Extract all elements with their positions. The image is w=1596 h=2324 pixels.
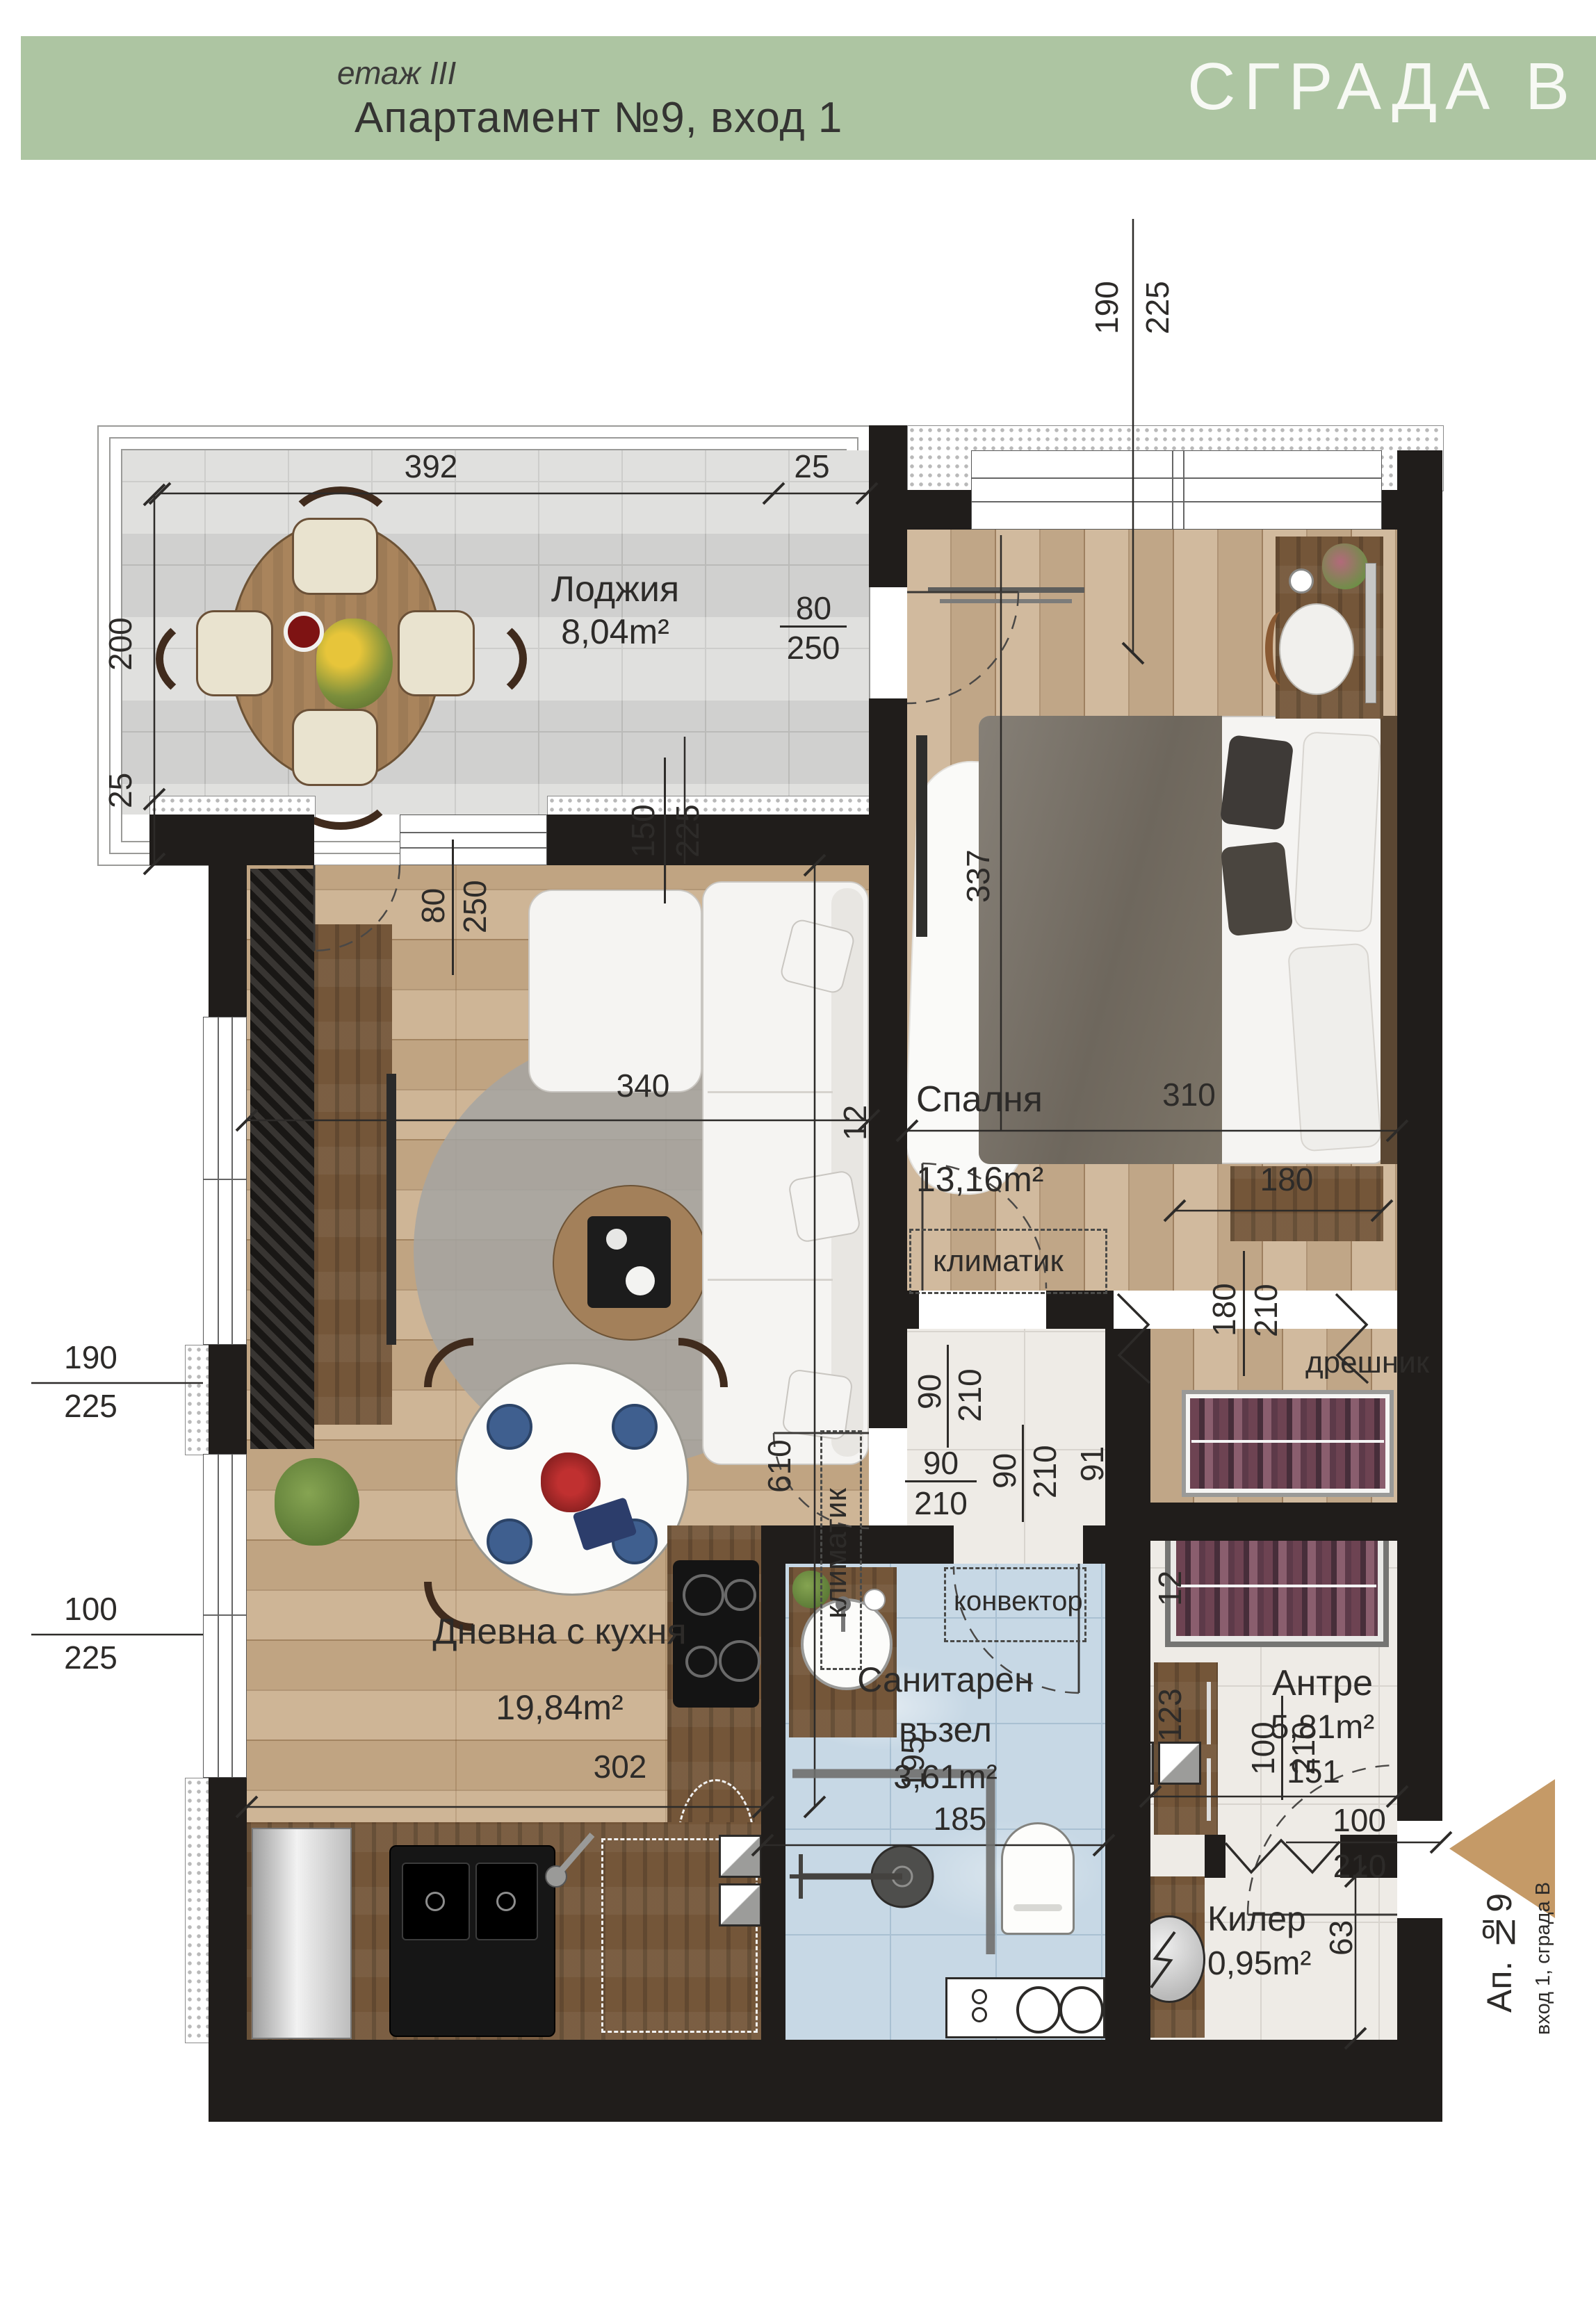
dim-door-entry-b: 210 <box>1318 1847 1401 1885</box>
bathroom-name-1: Санитарен <box>827 1660 1064 1700</box>
dim-living-width: 340 <box>601 1067 685 1104</box>
dim-door-lb-bar <box>780 625 847 628</box>
dim-wardrobe-door-bar <box>1243 1251 1245 1376</box>
dim-win-lo-b: 225 <box>40 1639 141 1676</box>
dim-closet-depth: 63 <box>1322 1903 1360 1972</box>
convector-label: конвектор <box>954 1586 1083 1617</box>
living-area: 19,84m² <box>396 1687 723 1728</box>
dim-wardrobe-width: 180 <box>1248 1161 1325 1198</box>
dim-loggia-depth-ext: 25 <box>101 758 139 824</box>
dim-loggia-width-ext: 25 <box>784 448 840 485</box>
entrance-apartment-label: Ап. №9 <box>1479 1835 1520 2071</box>
dim-door-ll-b: 250 <box>456 837 494 976</box>
dim-door-living-a: 90 <box>901 1444 981 1482</box>
entry-hall-name: Антре <box>1248 1662 1397 1704</box>
dim-win-bed-a: 190 <box>1088 229 1125 386</box>
bedroom-name: Спалня <box>916 1079 1043 1120</box>
dim-living-length: 610 <box>760 1400 798 1532</box>
dim-door-bath-bar <box>1022 1425 1024 1522</box>
dim-door-lb-bottom: 250 <box>772 629 855 666</box>
ac-bedroom-label: климатик <box>933 1244 1064 1279</box>
dim-win-ll-b: 225 <box>669 756 706 906</box>
dim-door-bath-b: 210 <box>1026 1422 1064 1522</box>
dim-loggia-depth: 200 <box>101 592 139 696</box>
dim-shower-depth: 195 <box>894 1718 931 1808</box>
loggia-area: 8,04m² <box>528 612 702 652</box>
loggia-name: Лоджия <box>528 568 702 610</box>
bathroom-name-2: възел <box>827 1710 1064 1750</box>
dim-door-lb-top: 80 <box>777 589 850 627</box>
dim-door-closet-b: 210 <box>1285 1694 1322 1802</box>
dim-kitchen-width: 302 <box>578 1748 662 1785</box>
wardrobe-name: дрешник <box>1305 1345 1429 1380</box>
dim-bedroom-length: 337 <box>959 819 997 933</box>
dim-door-bedroom-b: 210 <box>951 1343 988 1448</box>
dim-win-lu-a: 190 <box>40 1339 141 1376</box>
living-name: Дневна с кухня <box>396 1611 723 1653</box>
plan-linework <box>0 0 1596 2324</box>
dim-door-closet-bar <box>1281 1696 1283 1800</box>
closet-name: Килер <box>1207 1899 1306 1939</box>
dim-bedroom-width: 310 <box>1146 1076 1232 1113</box>
dim-wardrobe-door-b: 210 <box>1247 1250 1285 1371</box>
dim-win-ll-a: 150 <box>624 756 662 906</box>
dim-door-entry-a: 100 <box>1319 1801 1399 1839</box>
dim-hall-wall: 12 <box>1151 1557 1189 1619</box>
bedroom-area: 13,16m² <box>916 1159 1043 1200</box>
dim-door-ll-a: 80 <box>414 853 452 958</box>
dim-wardrobe-door-a: 180 <box>1205 1252 1243 1367</box>
dim-win-bed-b: 225 <box>1139 229 1176 386</box>
dim-bathroom-width: 185 <box>922 1800 998 1838</box>
bathroom-area: 3,61m² <box>827 1758 1064 1797</box>
dim-door-bedroom-bar <box>947 1345 949 1448</box>
dim-door-bedroom-a: 90 <box>911 1354 948 1429</box>
closet-area: 0,95m² <box>1207 1945 1311 1983</box>
entrance-sub-label: вход 1, сграда В <box>1532 1840 1555 2077</box>
dim-wardrobe-depth: 91 <box>1073 1426 1111 1501</box>
dim-win-lu-b: 225 <box>40 1387 141 1425</box>
dim-hall-depth: 123 <box>1151 1664 1189 1765</box>
dim-door-closet-a2: 100 <box>1244 1701 1282 1795</box>
dim-loggia-width: 392 <box>389 448 473 485</box>
dim-door-ll-bar <box>452 840 454 975</box>
dim-win-lo-a: 100 <box>40 1590 141 1628</box>
dim-door-living-b: 210 <box>897 1484 985 1522</box>
dim-door-living-bar <box>905 1480 977 1482</box>
dim-door-bath-a: 90 <box>986 1436 1023 1505</box>
floor-plan-page: етаж III Апартамент №9, вход 1 СГРАДА В <box>0 0 1596 2324</box>
ac-living-label: климатик <box>819 1452 854 1654</box>
dim-wall-b: 12 <box>836 1088 874 1157</box>
dim-win-ll-bar <box>664 758 666 903</box>
